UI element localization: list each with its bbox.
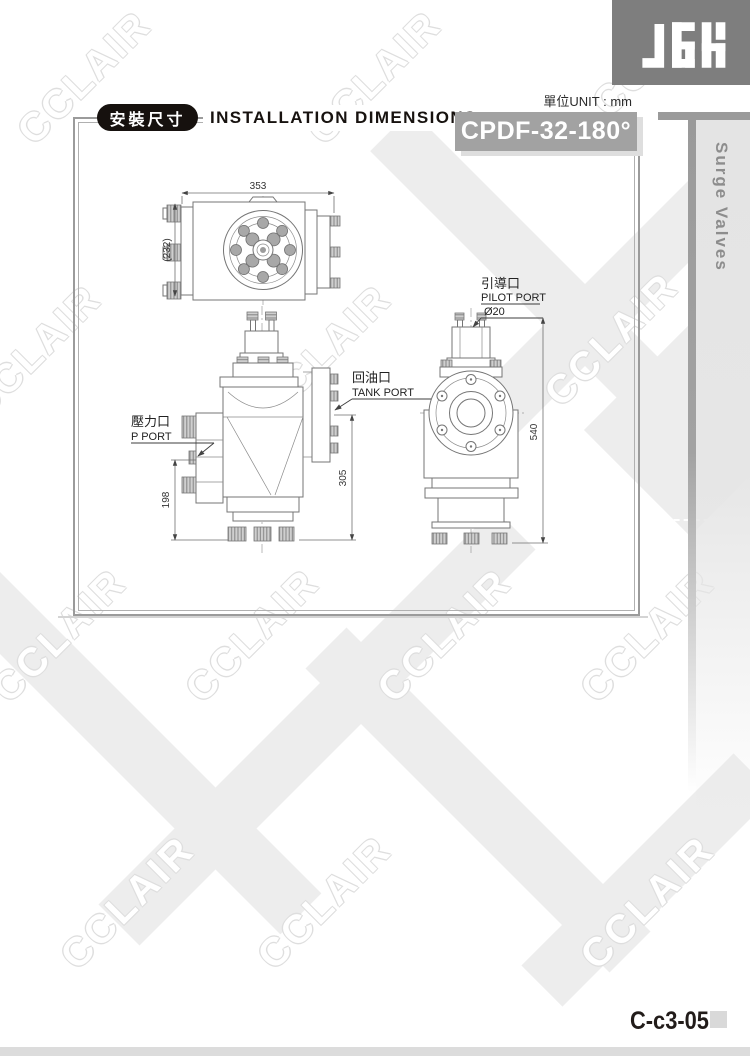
catalog-page: { "page": { "watermark_text": "CCLAIR", … xyxy=(0,0,750,1056)
side-view-drawing: 壓力口 P PORT 回油口 TANK PORT 198 305 xyxy=(131,306,440,553)
bottom-strip xyxy=(0,1047,750,1056)
side-tab-topbar xyxy=(658,112,750,120)
frame-shadow xyxy=(58,616,648,618)
logo-box: JGH xyxy=(612,0,750,85)
dim-height-232: (232) xyxy=(162,238,173,261)
page-code: C-c3-05 xyxy=(630,1006,709,1036)
logo-text: JGH xyxy=(612,0,613,1)
tank-port-label-en: TANK PORT xyxy=(352,387,414,399)
pilot-port-label-en: PILOT PORT xyxy=(481,292,546,304)
p-port-label-zh: 壓力口 xyxy=(131,414,170,429)
pilot-diameter-label: Ø20 xyxy=(484,306,505,318)
pilot-port-label-zh: 引導口 xyxy=(481,276,520,291)
unit-label: 單位UNIT : mm xyxy=(543,91,632,110)
dim-198: 198 xyxy=(161,491,172,508)
side-tab: Surge Valves xyxy=(696,120,750,820)
front-view-drawing: 引導口 PILOT PORT Ø20 540 xyxy=(420,276,548,553)
side-tab-label: Surge Valves xyxy=(711,142,731,272)
page-code-square xyxy=(710,1011,727,1028)
tank-port-label-zh: 回油口 xyxy=(352,370,391,385)
dim-width-353: 353 xyxy=(250,181,267,192)
p-port-label-en: P PORT xyxy=(131,431,172,443)
side-tab-strip xyxy=(688,112,696,792)
jgh-logo-icon xyxy=(640,17,732,73)
top-view-drawing: 353 (232) xyxy=(162,181,340,305)
dim-540: 540 xyxy=(529,423,540,440)
dim-305: 305 xyxy=(338,469,349,486)
installation-drawing: 353 (232) 壓力口 P PORT xyxy=(73,117,636,612)
